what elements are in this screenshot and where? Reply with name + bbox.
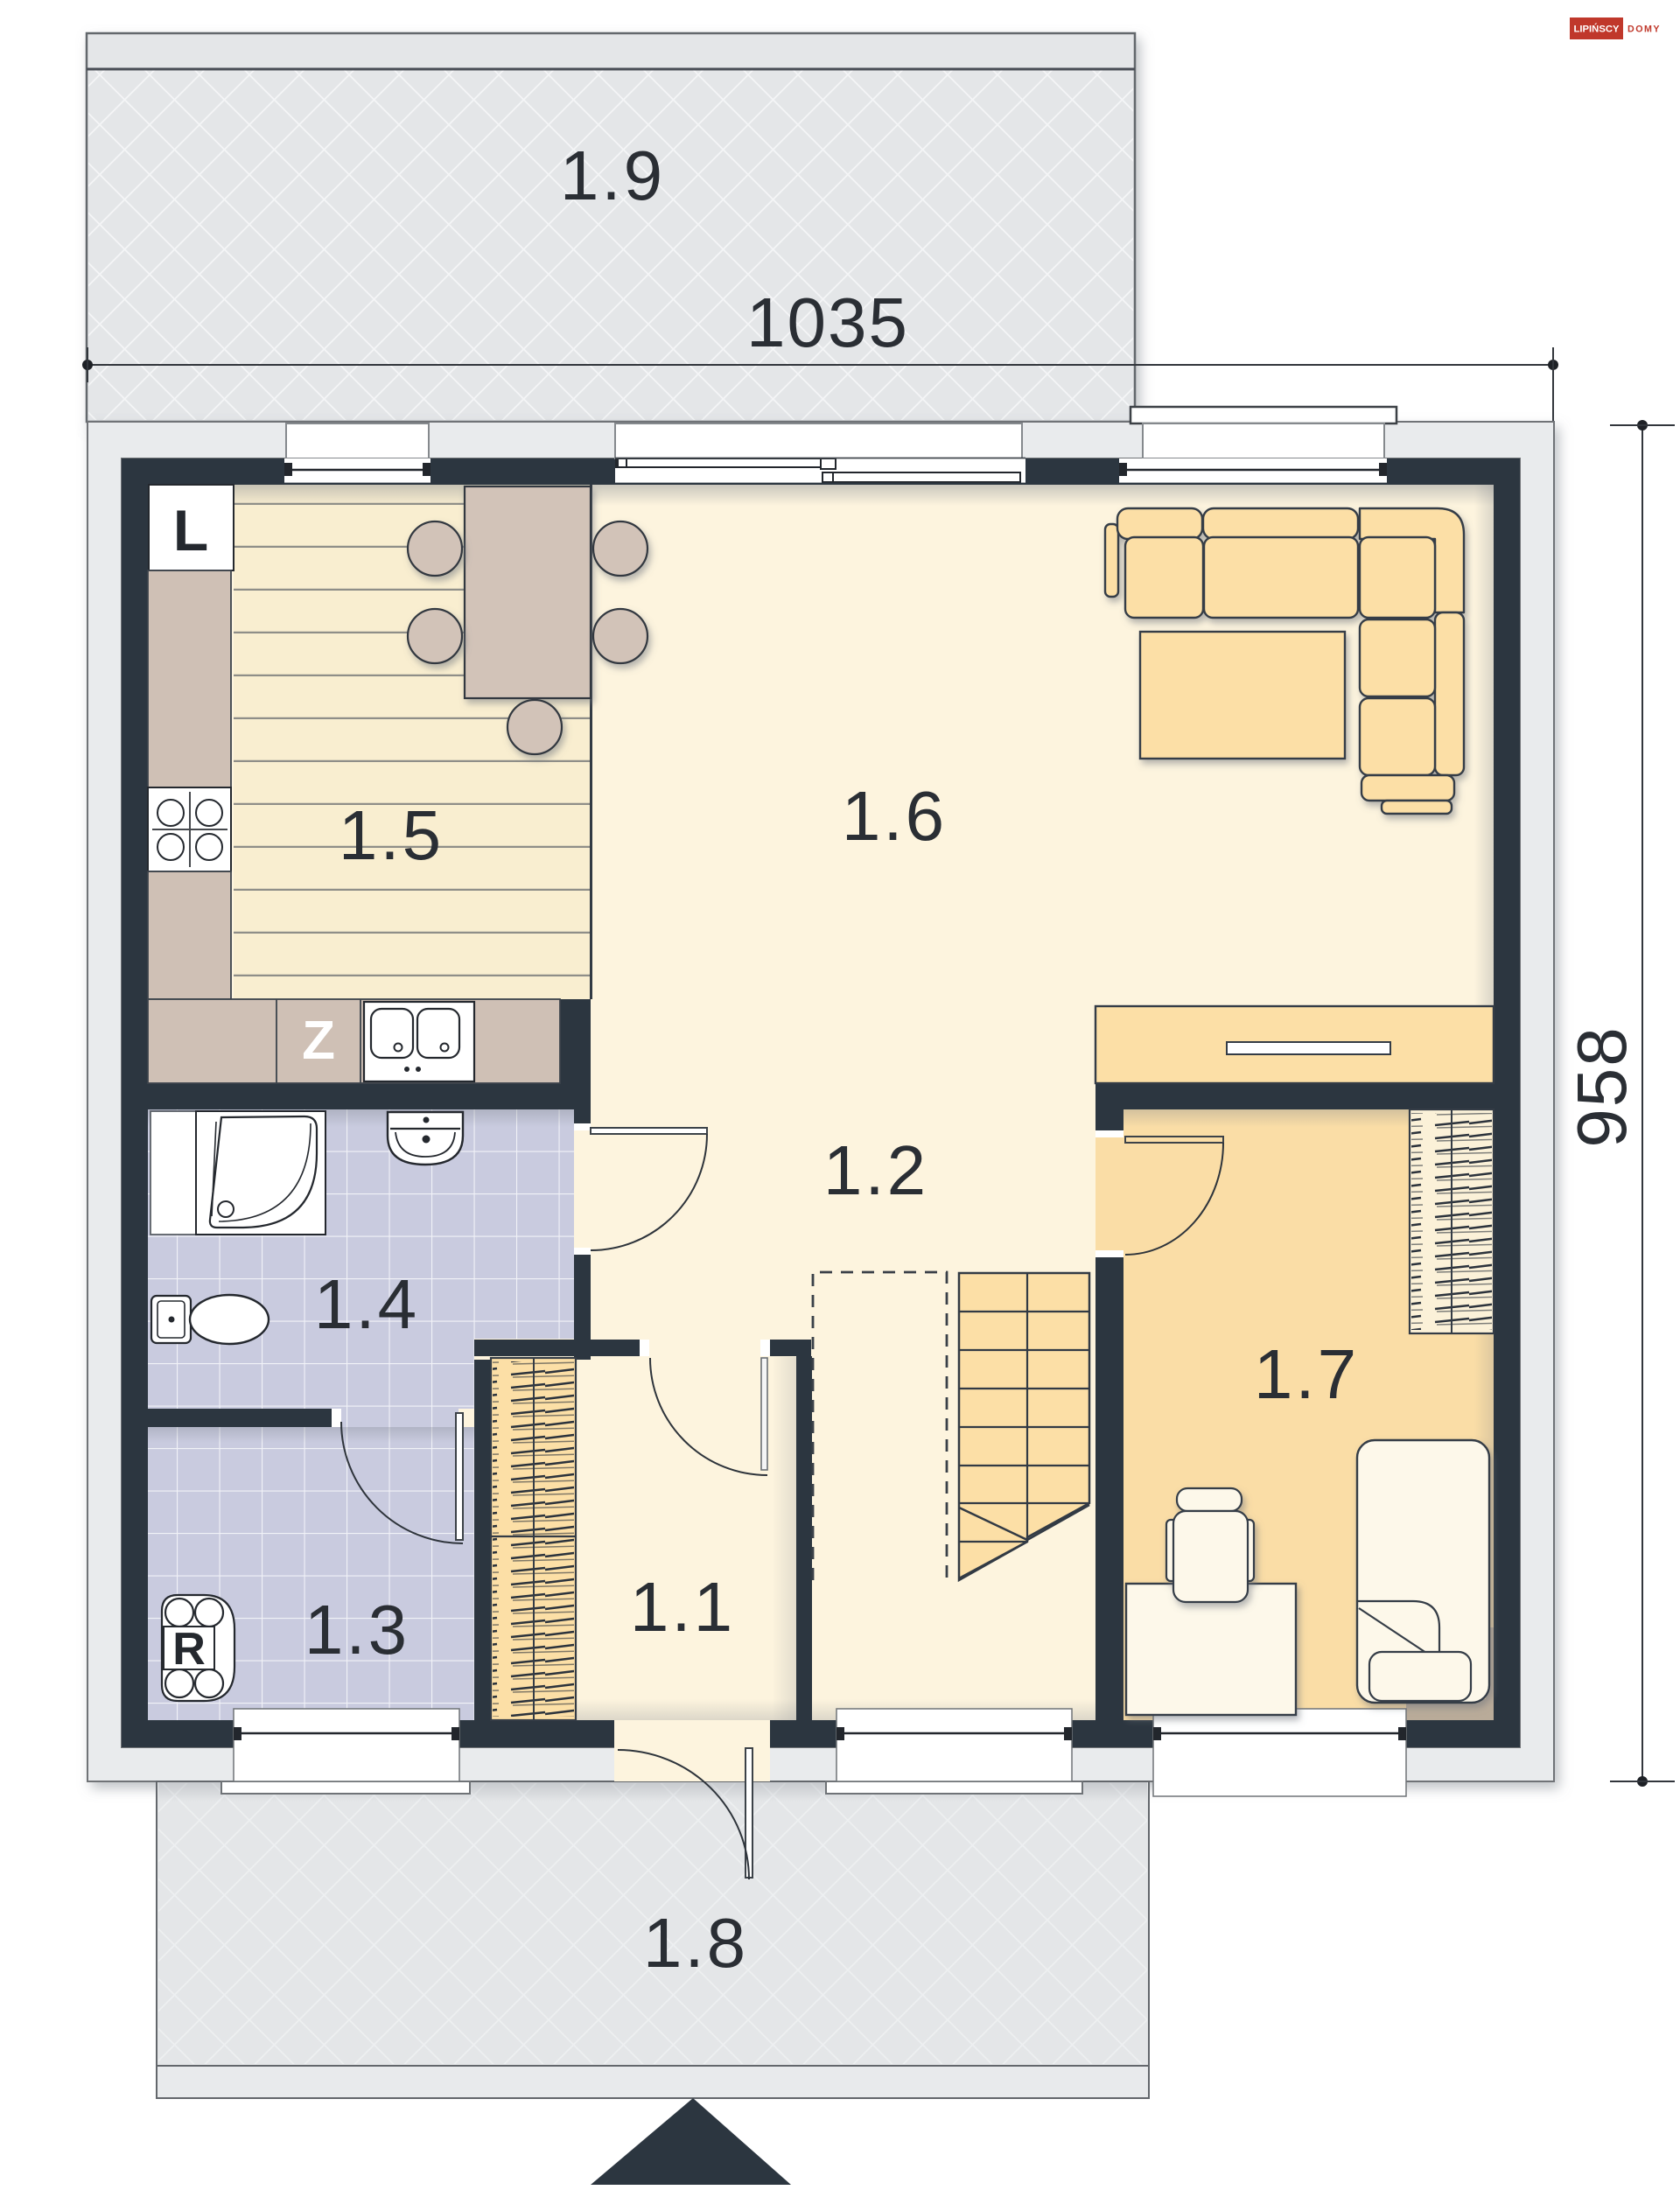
svg-text:Z: Z [302,1011,335,1071]
svg-text:1035: 1035 [746,283,909,361]
svg-text:1.4: 1.4 [314,1265,419,1343]
svg-text:1.7: 1.7 [1254,1335,1359,1413]
svg-text:958: 958 [1563,1025,1641,1147]
svg-text:1.1: 1.1 [630,1568,735,1646]
svg-text:1.3: 1.3 [304,1591,409,1669]
svg-text:L: L [173,498,208,563]
svg-text:1.2: 1.2 [823,1131,928,1209]
svg-text:1.8: 1.8 [643,1904,748,1982]
svg-text:DOMY: DOMY [1627,24,1661,35]
svg-text:LIPIŃSCY: LIPIŃSCY [1574,24,1620,35]
svg-text:1.9: 1.9 [560,136,665,214]
svg-text:1.6: 1.6 [842,777,947,855]
svg-text:R: R [172,1624,206,1675]
svg-text:1.5: 1.5 [339,796,444,874]
